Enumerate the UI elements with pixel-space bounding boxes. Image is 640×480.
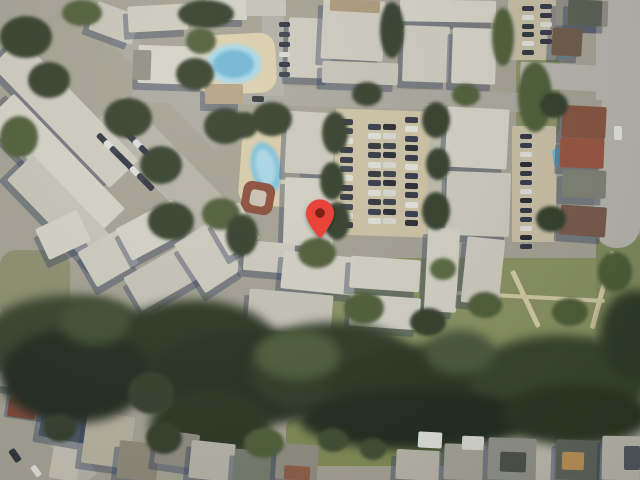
parked-car	[614, 126, 622, 140]
house	[462, 436, 484, 451]
parked-cars	[405, 183, 418, 189]
parked-cars	[383, 133, 396, 139]
parked-cars	[383, 161, 396, 167]
parked-cars	[383, 208, 396, 214]
parked-cars	[405, 145, 418, 151]
parked-cars	[522, 15, 534, 20]
house	[562, 169, 607, 199]
house	[500, 452, 527, 473]
tree	[0, 116, 38, 158]
parked-cars	[368, 152, 381, 158]
parked-cars	[368, 180, 381, 186]
parked-car	[8, 448, 22, 463]
tree	[0, 16, 52, 58]
parked-cars	[383, 199, 396, 205]
parked-cars	[540, 22, 552, 27]
house	[284, 465, 311, 480]
map-pin-glyph	[306, 199, 334, 239]
building	[246, 0, 286, 16]
parked-car	[252, 96, 264, 102]
parked-cars	[279, 32, 290, 37]
pool	[213, 50, 254, 78]
house	[561, 105, 607, 139]
tree	[148, 202, 194, 240]
tree	[244, 428, 284, 458]
tree	[344, 292, 384, 324]
spa-building	[249, 189, 268, 208]
parked-cars	[405, 136, 418, 142]
parked-cars	[405, 220, 418, 226]
parked-cars	[279, 62, 290, 67]
tree	[178, 0, 234, 28]
parked-cars	[368, 143, 381, 149]
parked-cars	[522, 32, 534, 37]
parked-cars	[368, 133, 381, 139]
tree	[252, 102, 292, 136]
tree	[140, 146, 182, 184]
parked-cars	[520, 244, 532, 249]
parked-cars	[540, 39, 552, 44]
parked-cars	[522, 41, 534, 46]
parked-cars	[368, 171, 381, 177]
canyon-trees	[0, 328, 150, 423]
tree	[426, 148, 450, 180]
parked-cars	[383, 143, 396, 149]
tree	[536, 206, 566, 232]
parked-cars	[540, 30, 552, 35]
canyon-trees	[425, 330, 495, 375]
house	[418, 431, 443, 448]
parked-cars	[520, 162, 532, 167]
tree	[552, 298, 588, 326]
parked-cars	[520, 134, 532, 139]
parked-cars	[522, 50, 534, 55]
parked-cars	[368, 161, 381, 167]
parked-cars	[383, 124, 396, 130]
parked-cars	[520, 171, 532, 176]
tree	[226, 214, 258, 256]
tree	[540, 92, 568, 118]
parked-cars	[405, 154, 418, 160]
parked-cars	[522, 24, 534, 29]
tree	[352, 82, 382, 106]
parked-cars	[520, 189, 532, 194]
parked-cars	[405, 164, 418, 170]
tree	[598, 252, 632, 292]
tree	[422, 192, 450, 230]
tree	[232, 112, 258, 138]
parked-cars	[540, 13, 552, 18]
satellite-map[interactable]	[0, 0, 640, 480]
parked-cars	[520, 198, 532, 203]
building	[205, 84, 243, 104]
map-pin-icon[interactable]	[306, 199, 334, 239]
house	[188, 440, 236, 480]
parked-cars	[520, 143, 532, 148]
parked-cars	[279, 22, 290, 27]
house	[562, 452, 585, 471]
tree	[176, 58, 214, 90]
parked-cars	[368, 208, 381, 214]
tree	[410, 308, 446, 336]
tree	[422, 102, 450, 138]
tree	[468, 292, 502, 318]
tree	[298, 238, 336, 268]
house	[395, 449, 441, 480]
tree	[128, 372, 174, 414]
building	[402, 25, 450, 83]
parked-cars	[540, 4, 552, 9]
tree	[430, 258, 456, 280]
tree	[318, 428, 348, 452]
building	[132, 50, 151, 81]
parked-cars	[383, 218, 396, 224]
tree	[44, 414, 76, 442]
parked-cars	[383, 171, 396, 177]
parked-cars	[368, 199, 381, 205]
parked-cars	[340, 156, 353, 162]
parked-cars	[520, 152, 532, 157]
parked-cars	[279, 52, 290, 57]
house	[568, 0, 603, 27]
tree	[186, 28, 216, 54]
parked-cars	[279, 42, 290, 47]
building	[451, 27, 497, 85]
building	[445, 171, 511, 237]
parked-cars	[520, 235, 532, 240]
parked-cars	[368, 218, 381, 224]
parked-cars	[383, 180, 396, 186]
building	[322, 61, 399, 86]
parked-cars	[368, 124, 381, 130]
house	[559, 137, 604, 169]
tree	[322, 112, 348, 154]
building	[400, 0, 496, 23]
canyon-trees	[60, 300, 130, 345]
house	[551, 27, 582, 57]
tree	[320, 162, 344, 200]
tree	[360, 438, 386, 460]
parked-car	[30, 464, 42, 477]
tree	[104, 98, 152, 138]
parked-cars	[405, 117, 418, 123]
parked-cars	[368, 190, 381, 196]
parked-cars	[383, 152, 396, 158]
house	[559, 204, 607, 237]
parked-cars	[405, 192, 418, 198]
tree	[380, 2, 404, 58]
parked-cars	[279, 72, 290, 77]
tree	[62, 0, 102, 26]
house	[624, 446, 640, 470]
parked-cars	[520, 226, 532, 231]
parked-cars	[520, 208, 532, 213]
tree	[452, 84, 480, 106]
parked-cars	[405, 173, 418, 179]
building	[349, 256, 421, 293]
parked-cars	[383, 190, 396, 196]
parked-cars	[405, 126, 418, 132]
canyon-trees	[255, 330, 340, 380]
parked-cars	[405, 211, 418, 217]
tree	[28, 62, 70, 98]
parked-cars	[340, 194, 353, 200]
building	[444, 106, 509, 169]
tree	[492, 8, 514, 66]
parked-cars	[522, 6, 534, 11]
parked-cars	[520, 180, 532, 185]
parked-cars	[405, 201, 418, 207]
tree	[146, 422, 182, 454]
parked-cars	[520, 217, 532, 222]
